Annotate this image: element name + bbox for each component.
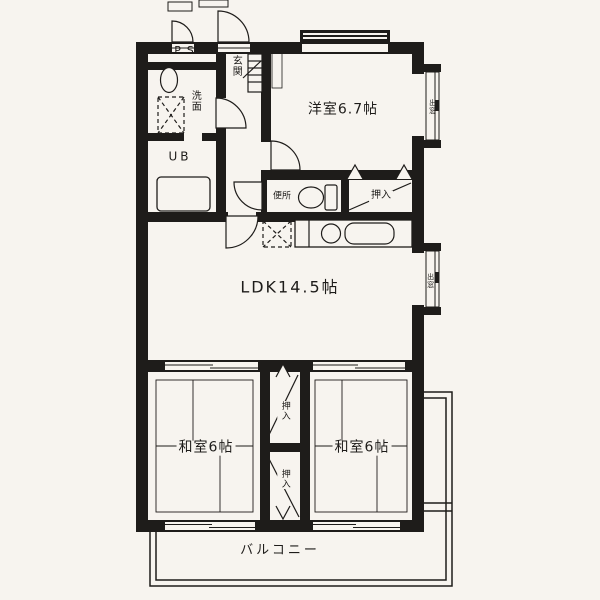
- toilet-door: [234, 182, 262, 210]
- western-room-door: [271, 141, 300, 170]
- washbasin-icon: [161, 68, 178, 93]
- louver-band: [300, 30, 390, 43]
- floor-plan: P.S 洗面 UB 玄関 洋室6.7帖 出窓 便所 押入 LDK14.5帖 出窓…: [0, 0, 600, 600]
- toilet-tank-icon: [325, 185, 337, 210]
- japanese-room-left-label: 和室6帖: [177, 441, 236, 456]
- entrance-door: [218, 11, 249, 42]
- washing-machine-space-icon: [158, 97, 184, 133]
- pipe-space-label: P.S: [174, 45, 195, 57]
- closet-mid-lower-label: 押入: [277, 469, 290, 489]
- bay-window-ldk-label: 出窓: [426, 273, 433, 289]
- top-edge-marks: [168, 0, 228, 11]
- wall-hall-left-upper: [216, 54, 226, 98]
- kitchen-burner-icon: [322, 224, 341, 243]
- western-top-window-opening: [302, 44, 388, 52]
- bay-window-western-label: 出窓: [428, 99, 435, 115]
- bathtub-icon: [157, 177, 210, 211]
- sliding-door-left: [165, 362, 258, 370]
- shoe-cabinet-icon: [248, 54, 262, 92]
- wall-ps-bottom: [148, 62, 216, 70]
- wall-ldk-top-a: [136, 212, 228, 222]
- western-room-label: 洋室6.7帖: [308, 103, 378, 118]
- porch-mark: [168, 2, 192, 11]
- washroom-door: [216, 98, 246, 128]
- closet-top-label: 押入: [369, 191, 393, 202]
- closet-mid-upper-label: 押入: [277, 401, 290, 421]
- louver-slit: [303, 33, 387, 35]
- wall-washroom-ub-b: [202, 133, 216, 141]
- toilet-bowl-icon: [299, 187, 324, 208]
- entrance-label: 玄関: [230, 55, 241, 77]
- washroom-label: 洗面: [189, 90, 200, 112]
- toilet-label: 便所: [273, 192, 291, 201]
- bay1-wall-opening: [412, 74, 424, 136]
- sliding-door-right: [313, 362, 405, 370]
- japanese-room-right-label: 和室6帖: [333, 441, 392, 456]
- wall-toilet-closet: [341, 180, 349, 212]
- unit-bath-label: UB: [168, 151, 191, 164]
- western-top-window: [300, 30, 390, 43]
- ps-door: [172, 21, 193, 42]
- louver-slit: [303, 37, 387, 39]
- bay2-wall-opening: [412, 253, 424, 305]
- closet-chevron: [276, 506, 290, 519]
- wall-washroom-ub-a: [148, 133, 184, 141]
- floor-plan-drawing: [0, 0, 600, 600]
- balcony-label: バルコニー: [240, 544, 320, 558]
- wall-pocket: [272, 52, 282, 88]
- wall-left: [136, 42, 148, 532]
- porch-mark: [199, 0, 228, 7]
- ldk-door: [226, 216, 258, 248]
- window-right-room: [313, 522, 400, 530]
- refrigerator-space-icon: [263, 221, 291, 247]
- kitchen-sink-icon: [345, 223, 394, 244]
- window-left-room: [165, 522, 255, 530]
- ldk-label: LDK14.5帖: [240, 280, 339, 297]
- wall-hall-left-lower: [216, 128, 226, 222]
- wall-closet-divider: [260, 443, 310, 452]
